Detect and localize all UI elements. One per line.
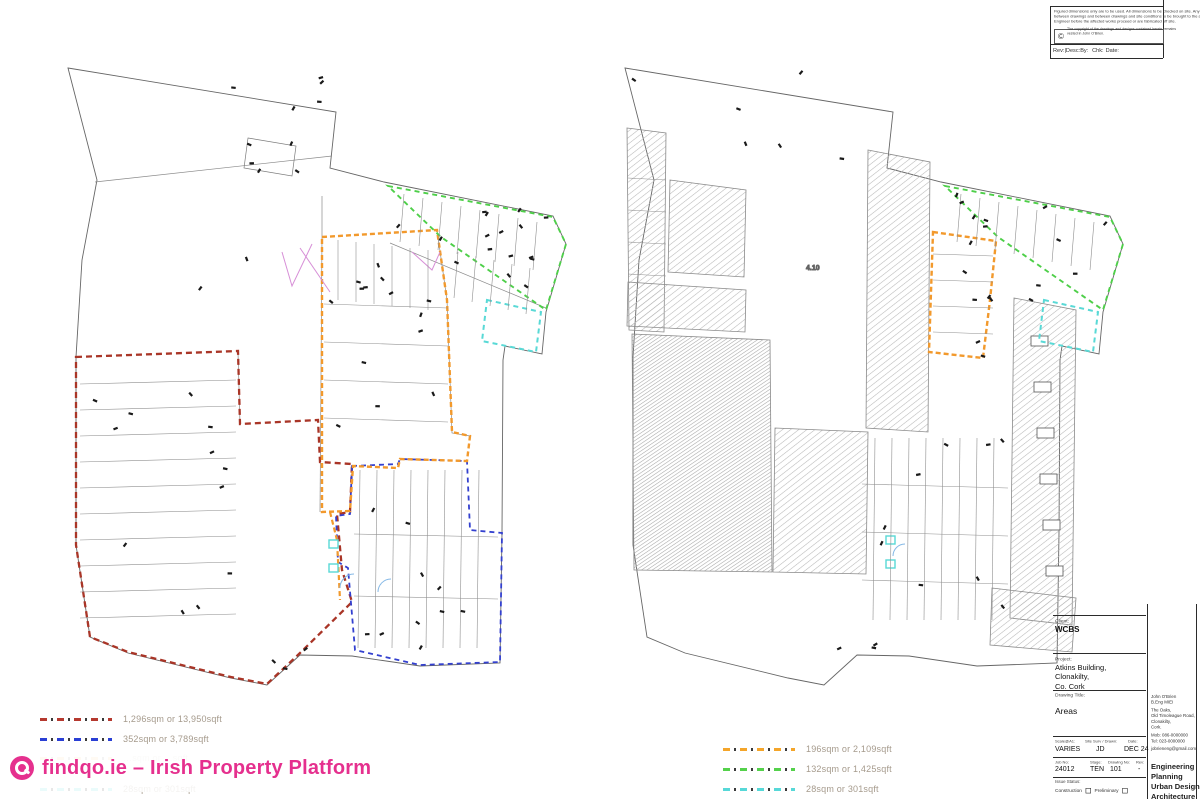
job-label: Job No: [1055, 760, 1069, 765]
legend-label: 352sqm or 3,789sqft [123, 734, 209, 744]
stage-label: Stage: [1090, 760, 1102, 765]
legend-item: 196sqm or 2,109sqft [723, 744, 892, 754]
legend-item: 132sqm or 1,425sqft [723, 764, 892, 774]
client-value: WCBS [1055, 625, 1079, 634]
date-value: DEC 24 [1124, 746, 1149, 753]
firm-contact-block: John O'Brien B.Eng MIEI The Oaks, Old Ti… [1151, 694, 1196, 752]
hatched-strip [866, 150, 930, 432]
project-label: Project: [1055, 656, 1072, 662]
project-value: Atkins Building, Clonakilty, Co. Cork [1055, 663, 1106, 691]
right-floor-plan: 4.10 [625, 68, 1123, 685]
revision-table-header: Rev:|Desc: By: Chk: Date: [1053, 47, 1120, 53]
legend-dash-green [723, 768, 795, 771]
hatched-band [627, 282, 746, 332]
drawing-title-value: Areas [1055, 706, 1077, 716]
general-notes: Figured dimensions only are to be used. … [1054, 9, 1200, 24]
legend-dash-red [40, 718, 112, 721]
preliminary-checkbox [1122, 788, 1127, 793]
drawing-no-label: Drawing No: [1108, 760, 1130, 765]
stage-value: TEN [1090, 766, 1104, 773]
zone-red-outline [76, 351, 352, 684]
scale-label: Scale@A1: [1055, 739, 1075, 744]
fixture-cyan-box [886, 536, 895, 544]
job-value: 24012 [1055, 766, 1074, 773]
drawing-sheet: 4.10 Figured dimensions only are to be u… [0, 0, 1200, 799]
findqo-logo-icon [10, 756, 34, 780]
client-label: Client: [1055, 618, 1069, 624]
rev-label: Rev: [1136, 760, 1144, 765]
legend-item: 352sqm or 3,789sqft [40, 734, 209, 744]
legend-dash-cyan [723, 788, 795, 791]
drawn-label: Site Surv / Drawn: [1085, 739, 1117, 744]
drawn-value: JD [1096, 746, 1105, 753]
legend-label: 196sqm or 2,109sqft [806, 744, 892, 754]
date-label: Date: [1128, 739, 1138, 744]
hatched-strip [1010, 298, 1076, 625]
hatched-block [668, 180, 746, 277]
hatched-block [773, 428, 868, 574]
zone-cyan-outline [482, 300, 541, 352]
legend-item: 1,296sqm or 13,950sqft [40, 714, 222, 724]
legend-item: 28sqm or 301sqft [723, 784, 879, 794]
firm-services: Engineering Planning Urban Design Archit… [1151, 762, 1200, 799]
zone-orange-tail [330, 512, 340, 600]
legend-label: 1,296sqm or 13,950sqft [123, 714, 222, 724]
left-floor-plan [68, 68, 566, 685]
floor-plans-canvas: 4.10 [0, 0, 1200, 799]
drawing-no-value: 101 [1110, 766, 1122, 773]
legend-label: 132sqm or 1,425sqft [806, 764, 892, 774]
zone-orange-outline [322, 230, 470, 512]
legend-label: 28sqm or 301sqft [806, 784, 879, 794]
fixture-cyan-box [329, 540, 338, 548]
watermark-text: findqo.ie – Irish Property Platform [42, 757, 371, 780]
scale-value: VARIES [1055, 746, 1080, 753]
legend-dash-orange [723, 748, 795, 751]
construction-checkbox [1086, 788, 1091, 793]
issue-status-label: Issue Status: [1055, 779, 1080, 784]
issue-status-options: Construction Preliminary [1055, 788, 1128, 793]
watermark: findqo.ie – Irish Property Platform [10, 756, 371, 780]
hatched-block-large [632, 334, 772, 572]
drawing-title-label: Drawing Title: [1055, 692, 1085, 698]
legend-dash-blue [40, 738, 112, 741]
zone-orange-outline [929, 232, 996, 358]
room-number-label: 4.10 [806, 265, 820, 272]
stair-lines [282, 244, 312, 286]
copyright-note: © The copyright of the drawings and desi… [1054, 29, 1164, 44]
fixture-cyan-box [329, 564, 338, 572]
copyright-icon: © [1058, 32, 1064, 41]
rev-value: - [1138, 766, 1140, 773]
